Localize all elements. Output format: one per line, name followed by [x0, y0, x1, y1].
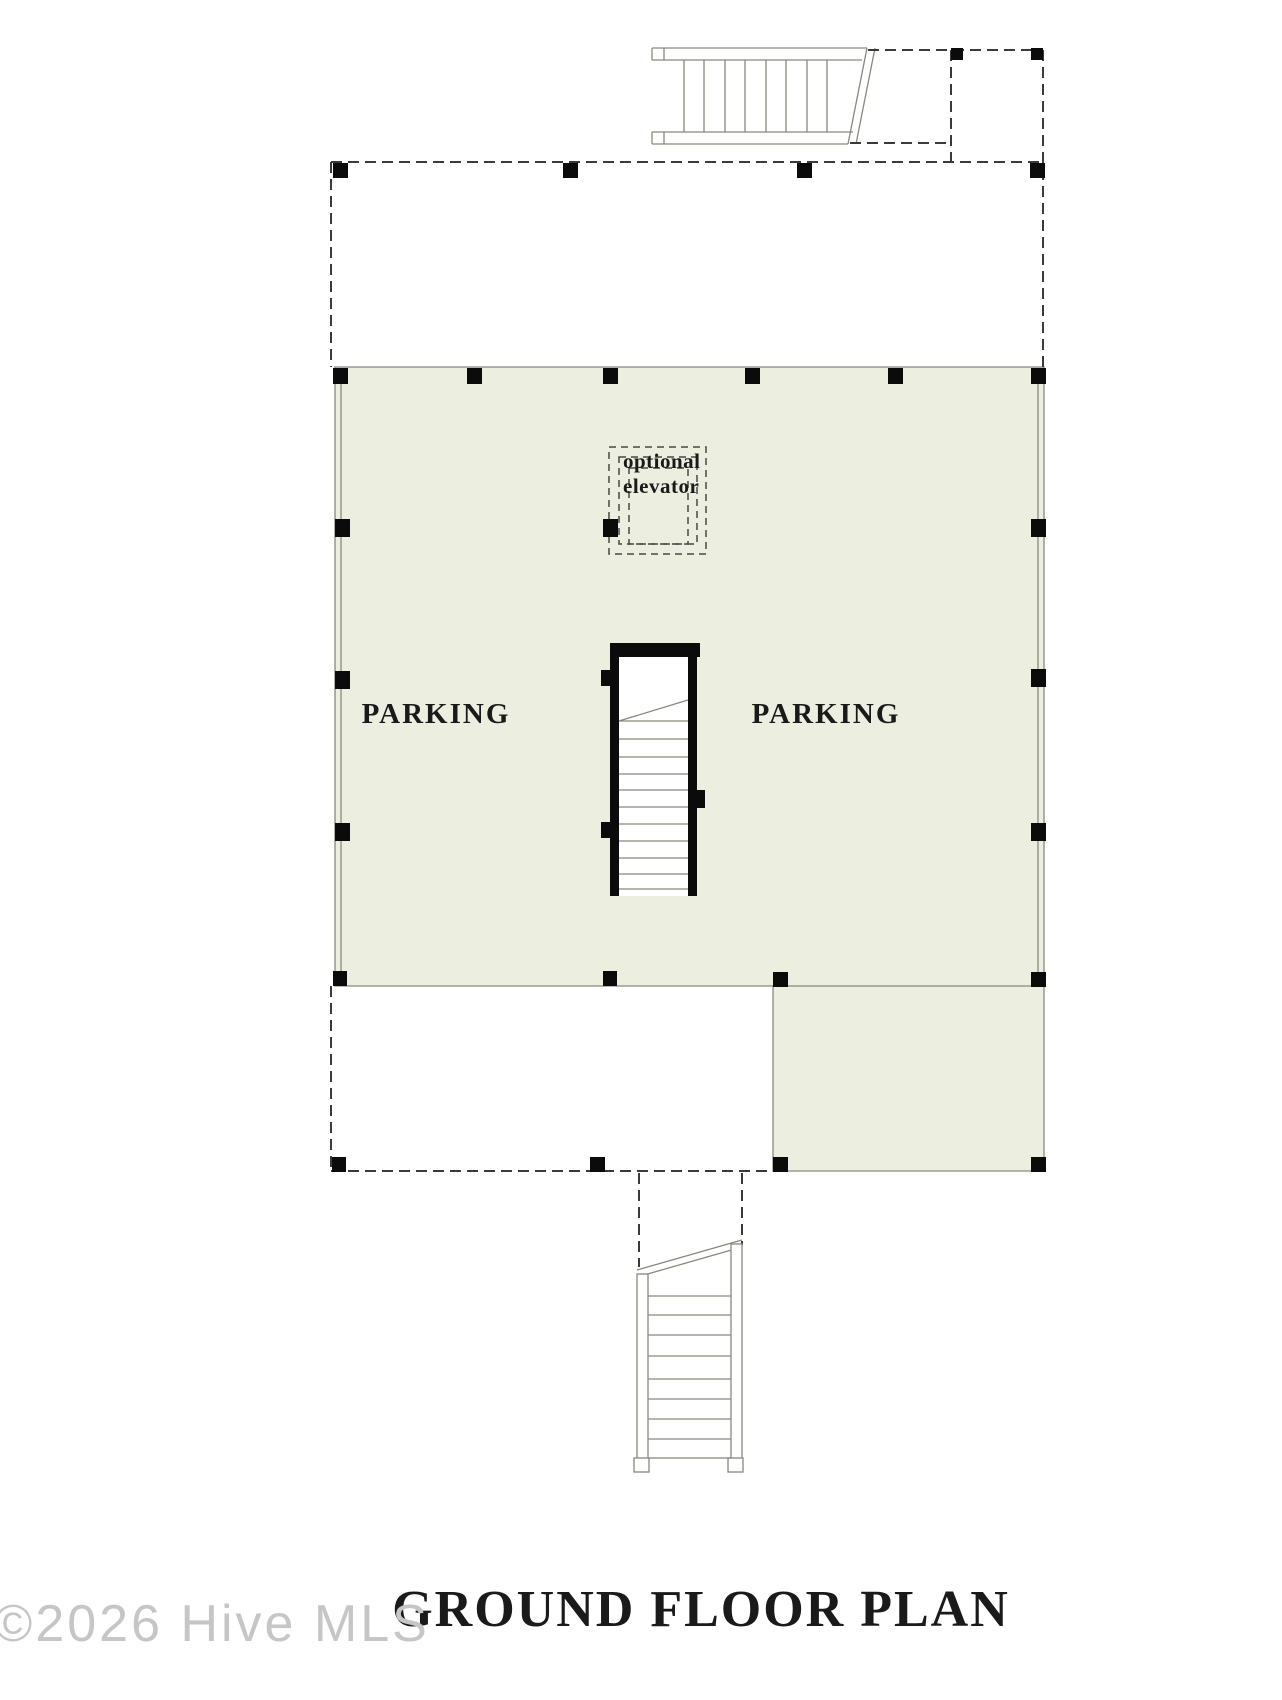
central-stairwell	[601, 643, 705, 896]
top-exterior-stair	[652, 48, 875, 144]
floor-plan-page: optional elevator PARKING PARKING GROUND…	[0, 0, 1282, 1700]
column-marker	[1031, 1157, 1046, 1172]
optional-elevator-label: optional elevator	[623, 449, 701, 499]
column-marker	[563, 163, 578, 178]
column-marker	[335, 519, 350, 537]
column-marker	[333, 163, 348, 178]
column-marker	[333, 971, 347, 986]
parking-label-left: PARKING	[356, 698, 516, 731]
column-marker	[590, 1157, 605, 1172]
column-marker	[1031, 972, 1046, 987]
column-marker	[797, 163, 812, 178]
column-marker	[603, 971, 617, 986]
column-marker	[1031, 669, 1046, 687]
column-marker	[773, 972, 788, 987]
floor-plan-drawing	[0, 0, 1282, 1700]
column-marker	[773, 1157, 788, 1172]
column-marker	[1031, 368, 1046, 384]
upper-deck-outline	[331, 50, 1043, 367]
column-marker	[332, 1157, 346, 1172]
lower-deck-outline	[331, 986, 773, 1171]
bottom-exterior-stair	[634, 1173, 743, 1472]
column-marker	[1031, 48, 1043, 60]
plan-title: GROUND FLOOR PLAN	[351, 1580, 1051, 1639]
column-marker	[335, 671, 350, 689]
column-marker	[603, 519, 618, 537]
column-marker	[603, 368, 618, 384]
optional-elevator-label-line1: optional	[623, 449, 701, 474]
column-marker	[333, 368, 348, 384]
column-marker	[951, 48, 963, 60]
optional-elevator-label-line2: elevator	[623, 474, 701, 499]
column-marker	[1031, 519, 1046, 537]
column-marker	[467, 368, 482, 384]
column-marker	[1030, 163, 1045, 178]
mls-watermark: ©2026 Hive MLS	[0, 1594, 430, 1654]
column-marker	[888, 368, 903, 384]
parking-label-right: PARKING	[746, 698, 906, 731]
column-marker	[1031, 823, 1046, 841]
column-marker	[335, 823, 350, 841]
column-marker	[745, 368, 760, 384]
